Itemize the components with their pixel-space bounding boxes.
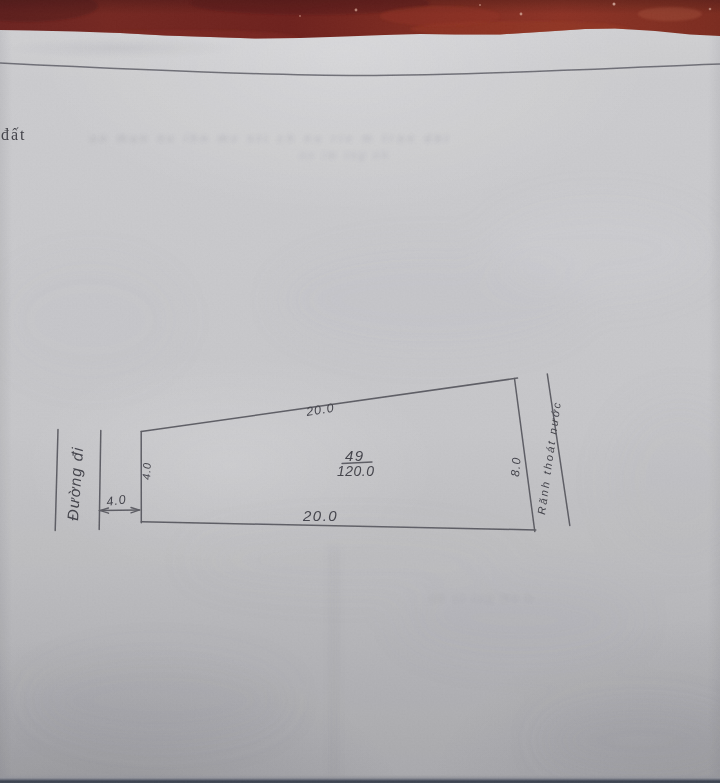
svg-text:4.0: 4.0: [140, 462, 153, 480]
svg-text:8.0: 8.0: [508, 456, 524, 477]
svg-text:Rãnh thoát nước: Rãnh thoát nước: [535, 400, 563, 516]
svg-text:49: 49: [345, 447, 365, 464]
svg-text:120.0: 120.0: [337, 463, 375, 479]
svg-text:Đường đi: Đường đi: [64, 446, 86, 521]
svg-text:20.0: 20.0: [304, 401, 335, 419]
svg-text:4.0: 4.0: [105, 492, 127, 509]
svg-text:20.0: 20.0: [302, 507, 338, 524]
